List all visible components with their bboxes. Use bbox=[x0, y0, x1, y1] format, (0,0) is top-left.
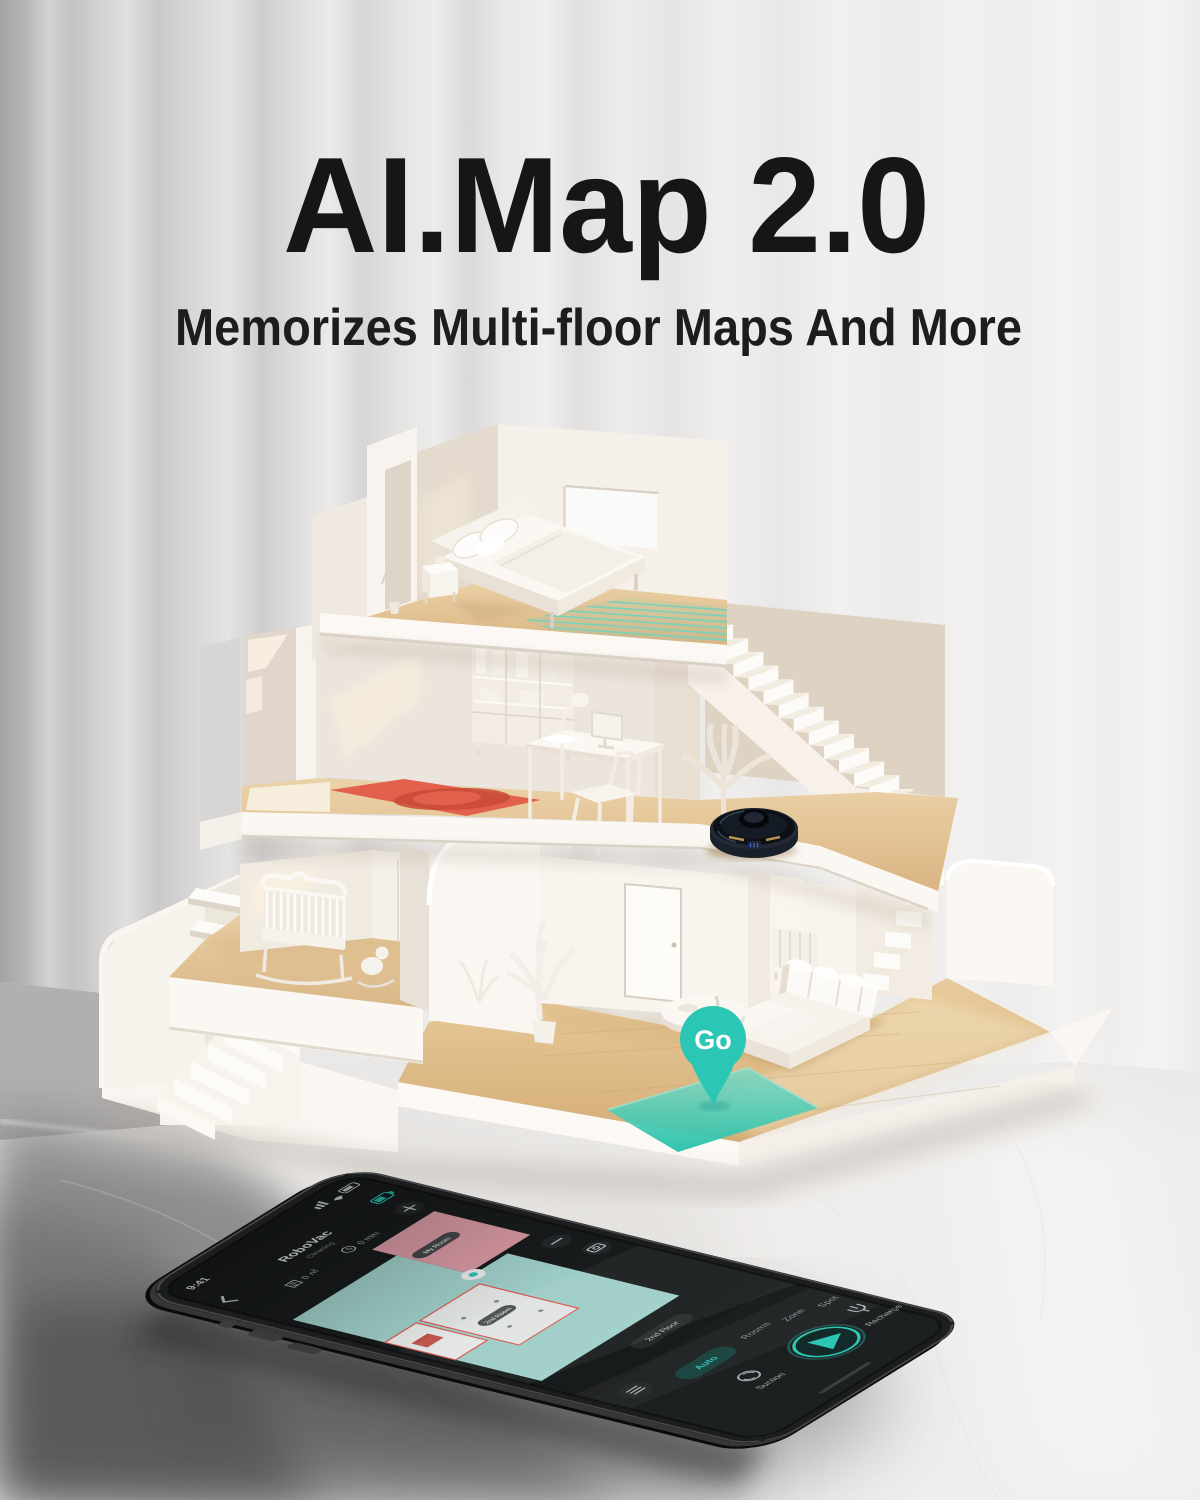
svg-text:Go: Go bbox=[694, 1025, 732, 1055]
svg-text:Memorizes Multi-floor Maps And: Memorizes Multi-floor Maps And More bbox=[175, 299, 1022, 357]
svg-text:AI.Map 2.0: AI.Map 2.0 bbox=[283, 129, 930, 281]
